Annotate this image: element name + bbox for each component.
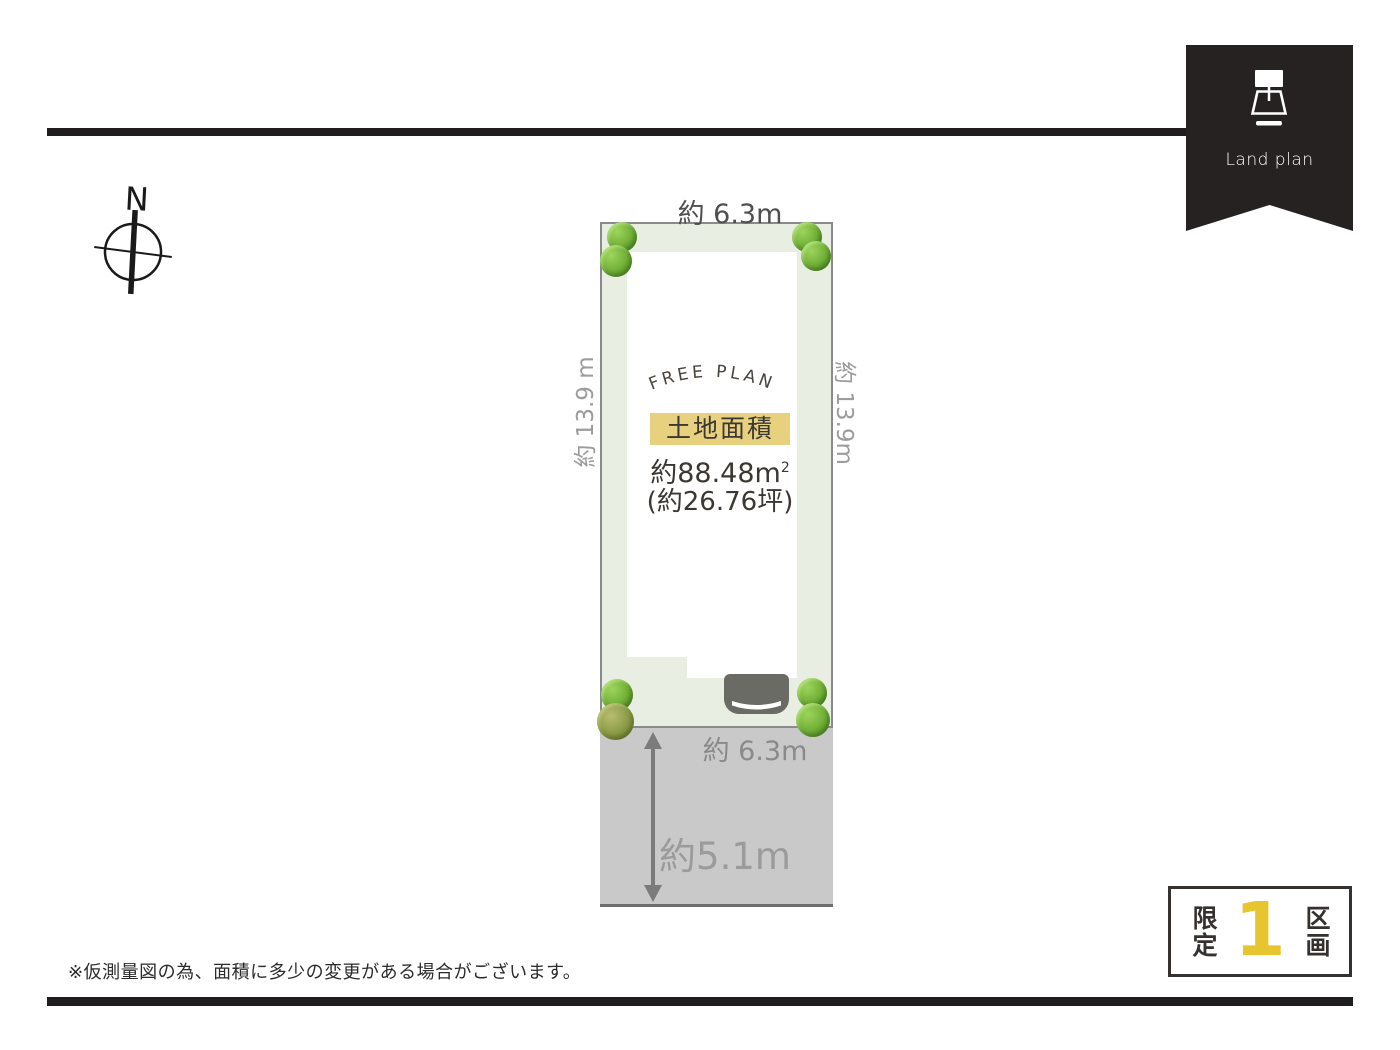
tree-bottom-left-2 <box>597 703 634 740</box>
free-plan-text: FREE PLAN <box>646 362 778 395</box>
svg-text:FREE PLAN: FREE PLAN <box>646 362 778 395</box>
land-area-tsubo: (約26.76坪) <box>627 481 813 518</box>
badge-count: 1 <box>1234 893 1286 967</box>
top-divider-line <box>47 128 1187 136</box>
free-plan-arc-text: FREE PLAN <box>627 352 797 402</box>
road-width-label: 約5.1m <box>655 826 795 880</box>
compass-north-indicator: N <box>83 172 193 307</box>
tree-top-left-2 <box>600 245 632 277</box>
limited-lot-badge: 限定 1 区画 <box>1168 886 1352 977</box>
ribbon-label: Land plan <box>1186 150 1353 170</box>
dimension-top-width: 約 6.3m <box>660 192 800 231</box>
survey-instrument-icon <box>1249 68 1289 130</box>
dimension-bottom-width: 約 6.3m <box>685 729 825 768</box>
badge-suffix: 区画 <box>1304 905 1329 959</box>
land-plan-ribbon: Land plan <box>1186 45 1353 231</box>
badge-prefix: 限定 <box>1191 905 1216 959</box>
land-plan-page: Land plan N 約 6.3m 約 13.9 m 約 13.9m 約 6.… <box>0 0 1400 1050</box>
parked-car-icon <box>724 674 789 714</box>
land-area-sqm-sup: 2 <box>781 460 790 476</box>
dimension-left-depth: 約 13.9 m <box>566 356 600 467</box>
disclaimer-note: ※仮測量図の為、面積に多少の変更がある場合がございます。 <box>68 958 581 984</box>
dimension-right-depth: 約 13.9m <box>830 361 864 465</box>
tree-top-right-2 <box>801 241 831 271</box>
bottom-divider-line <box>47 997 1353 1006</box>
land-area-heading: 土地面積 <box>650 413 790 445</box>
